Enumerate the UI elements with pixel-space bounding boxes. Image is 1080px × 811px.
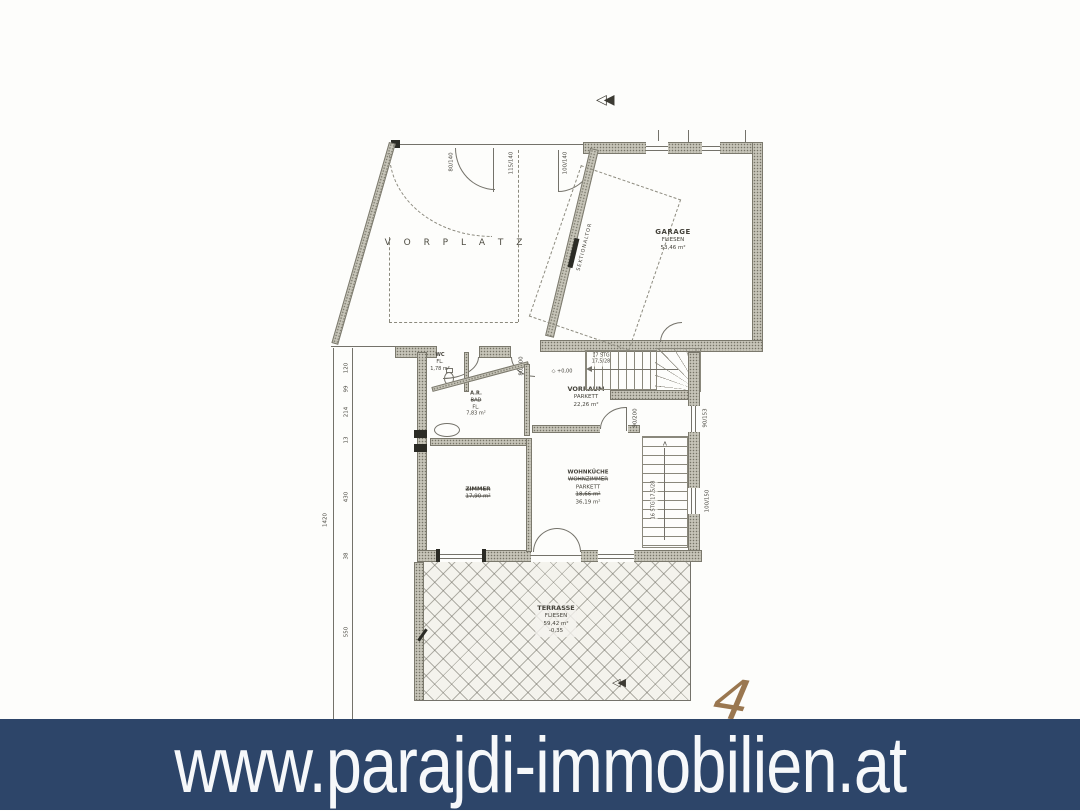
terrace-bottom-line (417, 700, 691, 701)
wc-wall (464, 352, 469, 392)
window-line (702, 146, 720, 147)
house-left-wall (417, 352, 427, 562)
dim-label: 38 (343, 553, 350, 560)
parking-dashed-outline (529, 165, 681, 351)
window-line (702, 150, 720, 151)
terrace-right-line (690, 562, 691, 701)
window (646, 141, 668, 155)
partition-wall (430, 438, 530, 446)
wall-segment (479, 346, 511, 358)
door-arc (533, 528, 557, 552)
window-line (598, 558, 634, 559)
partition-wall (526, 438, 532, 552)
dim-label: 90/200 (632, 408, 639, 427)
stair-label-side: 16 STG 17,5/28 (651, 481, 658, 520)
website-url: www.parajdi-immobilien.at (174, 719, 906, 811)
dim-label: 214 (343, 407, 350, 418)
room-label-vorplatz: V O R P L A T Z (385, 237, 528, 249)
window-line (439, 554, 483, 555)
window (439, 549, 483, 563)
room-label-garage: GARAGE FLIESEN 53,46 m² (655, 228, 691, 252)
dimension-line (333, 348, 334, 720)
dashed-line (389, 237, 390, 322)
floor-plan-page: ◁◀ V O R P L A T Z 80/140 115/140 100/14… (0, 0, 1080, 810)
window-sill (414, 430, 427, 438)
window-line (646, 150, 668, 151)
stair-arrow-head (586, 366, 592, 372)
dim-label: 80/140 (448, 152, 455, 171)
dim-label: 99 (343, 386, 350, 393)
window-sill (482, 549, 486, 563)
room-label-wohnkueche: WOHNKÜCHE WOHNZIMMER PARKETT 18,66 m² 36… (568, 469, 609, 506)
dashed-line (389, 322, 518, 323)
window-line (646, 146, 668, 147)
stair-arrow (664, 448, 665, 540)
window (687, 488, 701, 514)
section-marker-icon: ◁◀ (596, 92, 612, 108)
door-arc (557, 528, 581, 552)
vorplatz-top-line (390, 144, 588, 145)
window (702, 141, 720, 155)
wall-under-stair (610, 390, 692, 400)
stair-arrow (592, 369, 678, 370)
room-label-zimmer: ZIMMER 17,90 m² (465, 487, 490, 502)
stair-label-main: 17 STG 17,5/28 (592, 354, 610, 367)
dimension-line (352, 348, 353, 720)
house-right-wall (688, 352, 700, 562)
window-sill (436, 549, 440, 563)
room-label-wc: WC FL. 1,78 m² (430, 352, 450, 372)
window-line (439, 558, 483, 559)
website-banner: www.parajdi-immobilien.at (0, 719, 1080, 810)
dim-label: 115/140 (508, 152, 515, 175)
dim-label-total: 1420 (322, 513, 329, 527)
door-leaf (558, 150, 559, 192)
dim-label: 430 (343, 492, 350, 503)
garage-top-wall (583, 142, 763, 154)
window-sill (414, 444, 427, 452)
window-line (695, 488, 696, 514)
tick (745, 130, 746, 142)
tick (688, 130, 689, 142)
garage-right-wall (752, 142, 763, 352)
dim-label: 100/150 (704, 490, 711, 513)
door-arc (660, 322, 682, 342)
dim-label: 90/153 (702, 408, 709, 427)
dim-label: 120 (343, 363, 350, 374)
dim-label: 13 (343, 437, 350, 444)
window-line (691, 488, 692, 514)
window-line (598, 554, 634, 555)
ar-right-wall (524, 364, 530, 436)
window-line (691, 406, 692, 432)
window (687, 406, 701, 432)
door-line (531, 555, 581, 556)
dim-label: 100/140 (562, 152, 569, 175)
room-label-abstellraum: A.R. BAD FL. 7,83 m² (466, 391, 486, 418)
dim-label: 550 (343, 627, 350, 638)
level-mark: ◇ +0,00 (552, 369, 573, 376)
section-marker-icon: ◁◀ (612, 676, 623, 689)
door-arc (600, 407, 626, 429)
stair-side (642, 436, 688, 548)
stair-arrow-head: ʌ (663, 439, 667, 448)
room-label-terrasse: TERRASSE FLIESEN 59,42 m² -0,35 (535, 603, 576, 637)
bathtub-fixture (434, 423, 460, 437)
door-leaf (626, 407, 627, 431)
window-line (695, 406, 696, 432)
plan-line (331, 346, 395, 347)
window (598, 549, 634, 563)
